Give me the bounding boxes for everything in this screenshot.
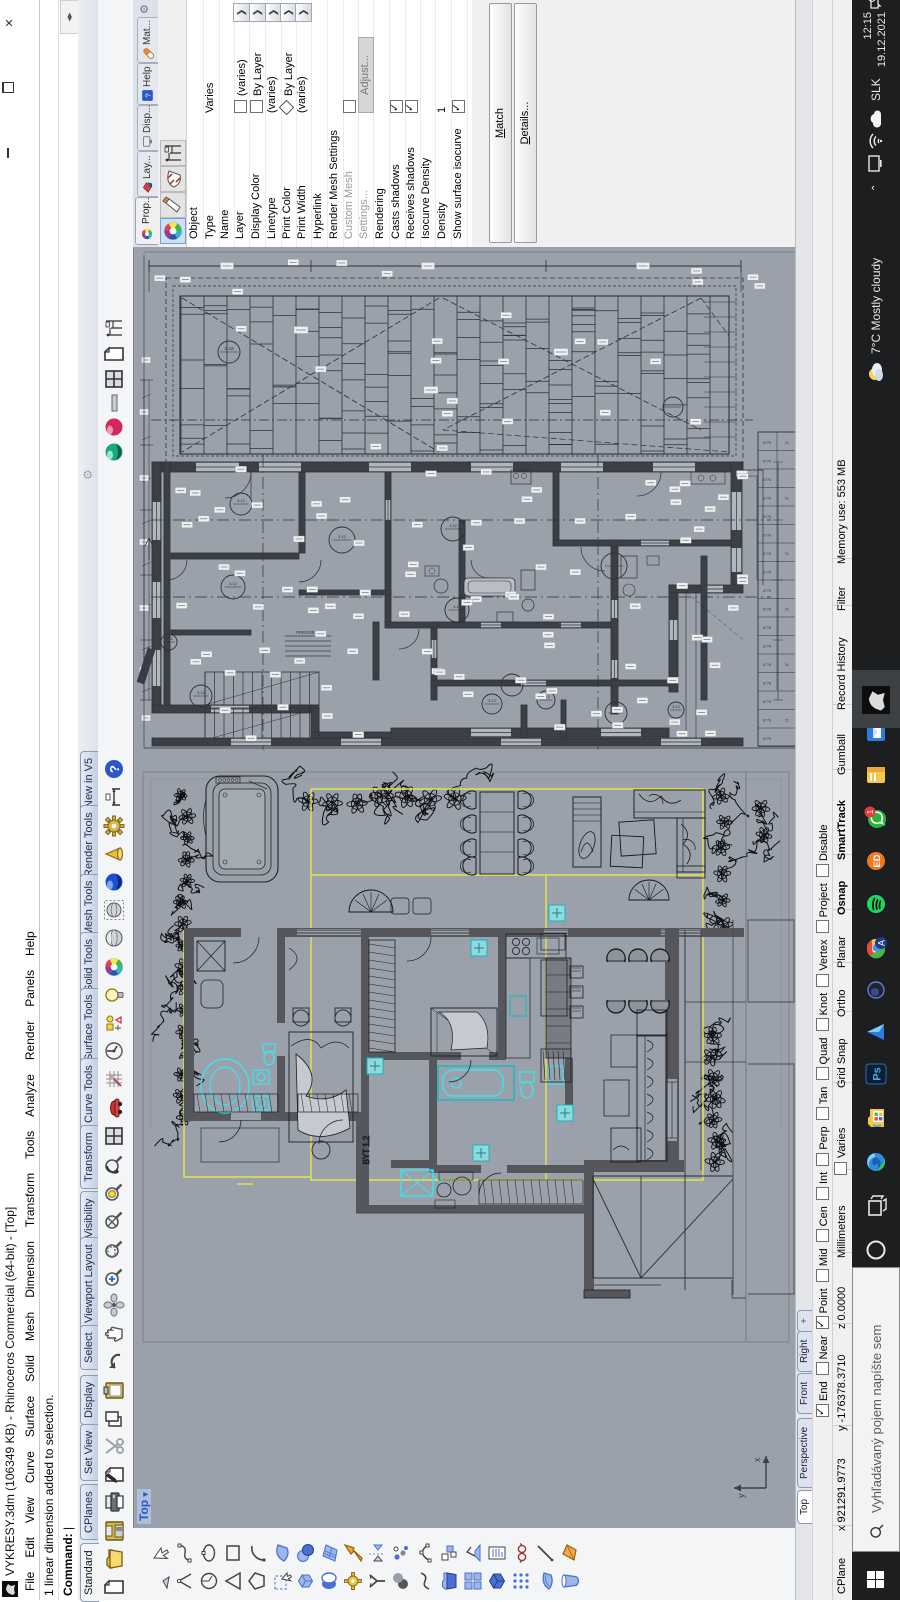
svg-text:8778: 8778 [763,441,771,445]
svg-text:8778: 8778 [763,552,771,556]
svg-text:3.12: 3.12 [610,561,617,565]
svg-text:51: 51 [785,497,789,501]
svg-text:3.12: 3.12 [508,680,515,684]
svg-text:8778: 8778 [763,663,771,667]
svg-text:A: A [877,940,887,946]
svg-text:ED: ED [872,854,883,867]
svg-text:8778: 8778 [763,737,771,741]
svg-text:8778: 8778 [763,682,771,686]
svg-text:51: 51 [785,608,789,612]
svg-text:8778: 8778 [763,645,771,649]
svg-text:3.12: 3.12 [229,582,236,586]
svg-text:Ps: Ps [872,1067,884,1080]
svg-text:3.12: 3.12 [197,691,204,695]
svg-text:8778: 8778 [763,515,771,519]
svg-text:3.12: 3.12 [165,637,172,641]
svg-text:x: x [752,1457,762,1462]
svg-text:3.12: 3.12 [672,705,679,709]
svg-text:51: 51 [785,552,789,556]
svg-text:3.12: 3.12 [237,499,244,503]
svg-text:8778: 8778 [763,589,771,593]
svg-text:8778: 8778 [763,534,771,538]
svg-text:8778: 8778 [763,608,771,612]
svg-text:3.12: 3.12 [449,524,456,528]
svg-text:PREDSIEN: PREDSIEN [296,630,317,635]
svg-text:8778: 8778 [763,460,771,464]
svg-text:BYT 1.2: BYT 1.2 [362,1135,371,1164]
svg-text:3.12: 3.12 [338,535,345,539]
svg-text:8778: 8778 [763,571,771,575]
svg-text:?: ? [143,93,152,97]
svg-text:y: y [736,1493,746,1498]
svg-text:8778: 8778 [763,497,771,501]
svg-text:3.12: 3.12 [488,699,495,703]
svg-text:8778: 8778 [763,626,771,630]
svg-text:8778: 8778 [763,700,771,704]
svg-text:S.16: S.16 [224,346,234,351]
svg-text:3.12: 3.12 [453,605,460,609]
svg-text:1: 1 [866,809,875,814]
svg-text:51: 51 [785,719,789,723]
svg-text:8778: 8778 [763,478,771,482]
svg-text:?: ? [107,765,122,773]
svg-text:8778: 8778 [763,719,771,723]
svg-text:51: 51 [785,663,789,667]
svg-text:51: 51 [785,441,789,445]
